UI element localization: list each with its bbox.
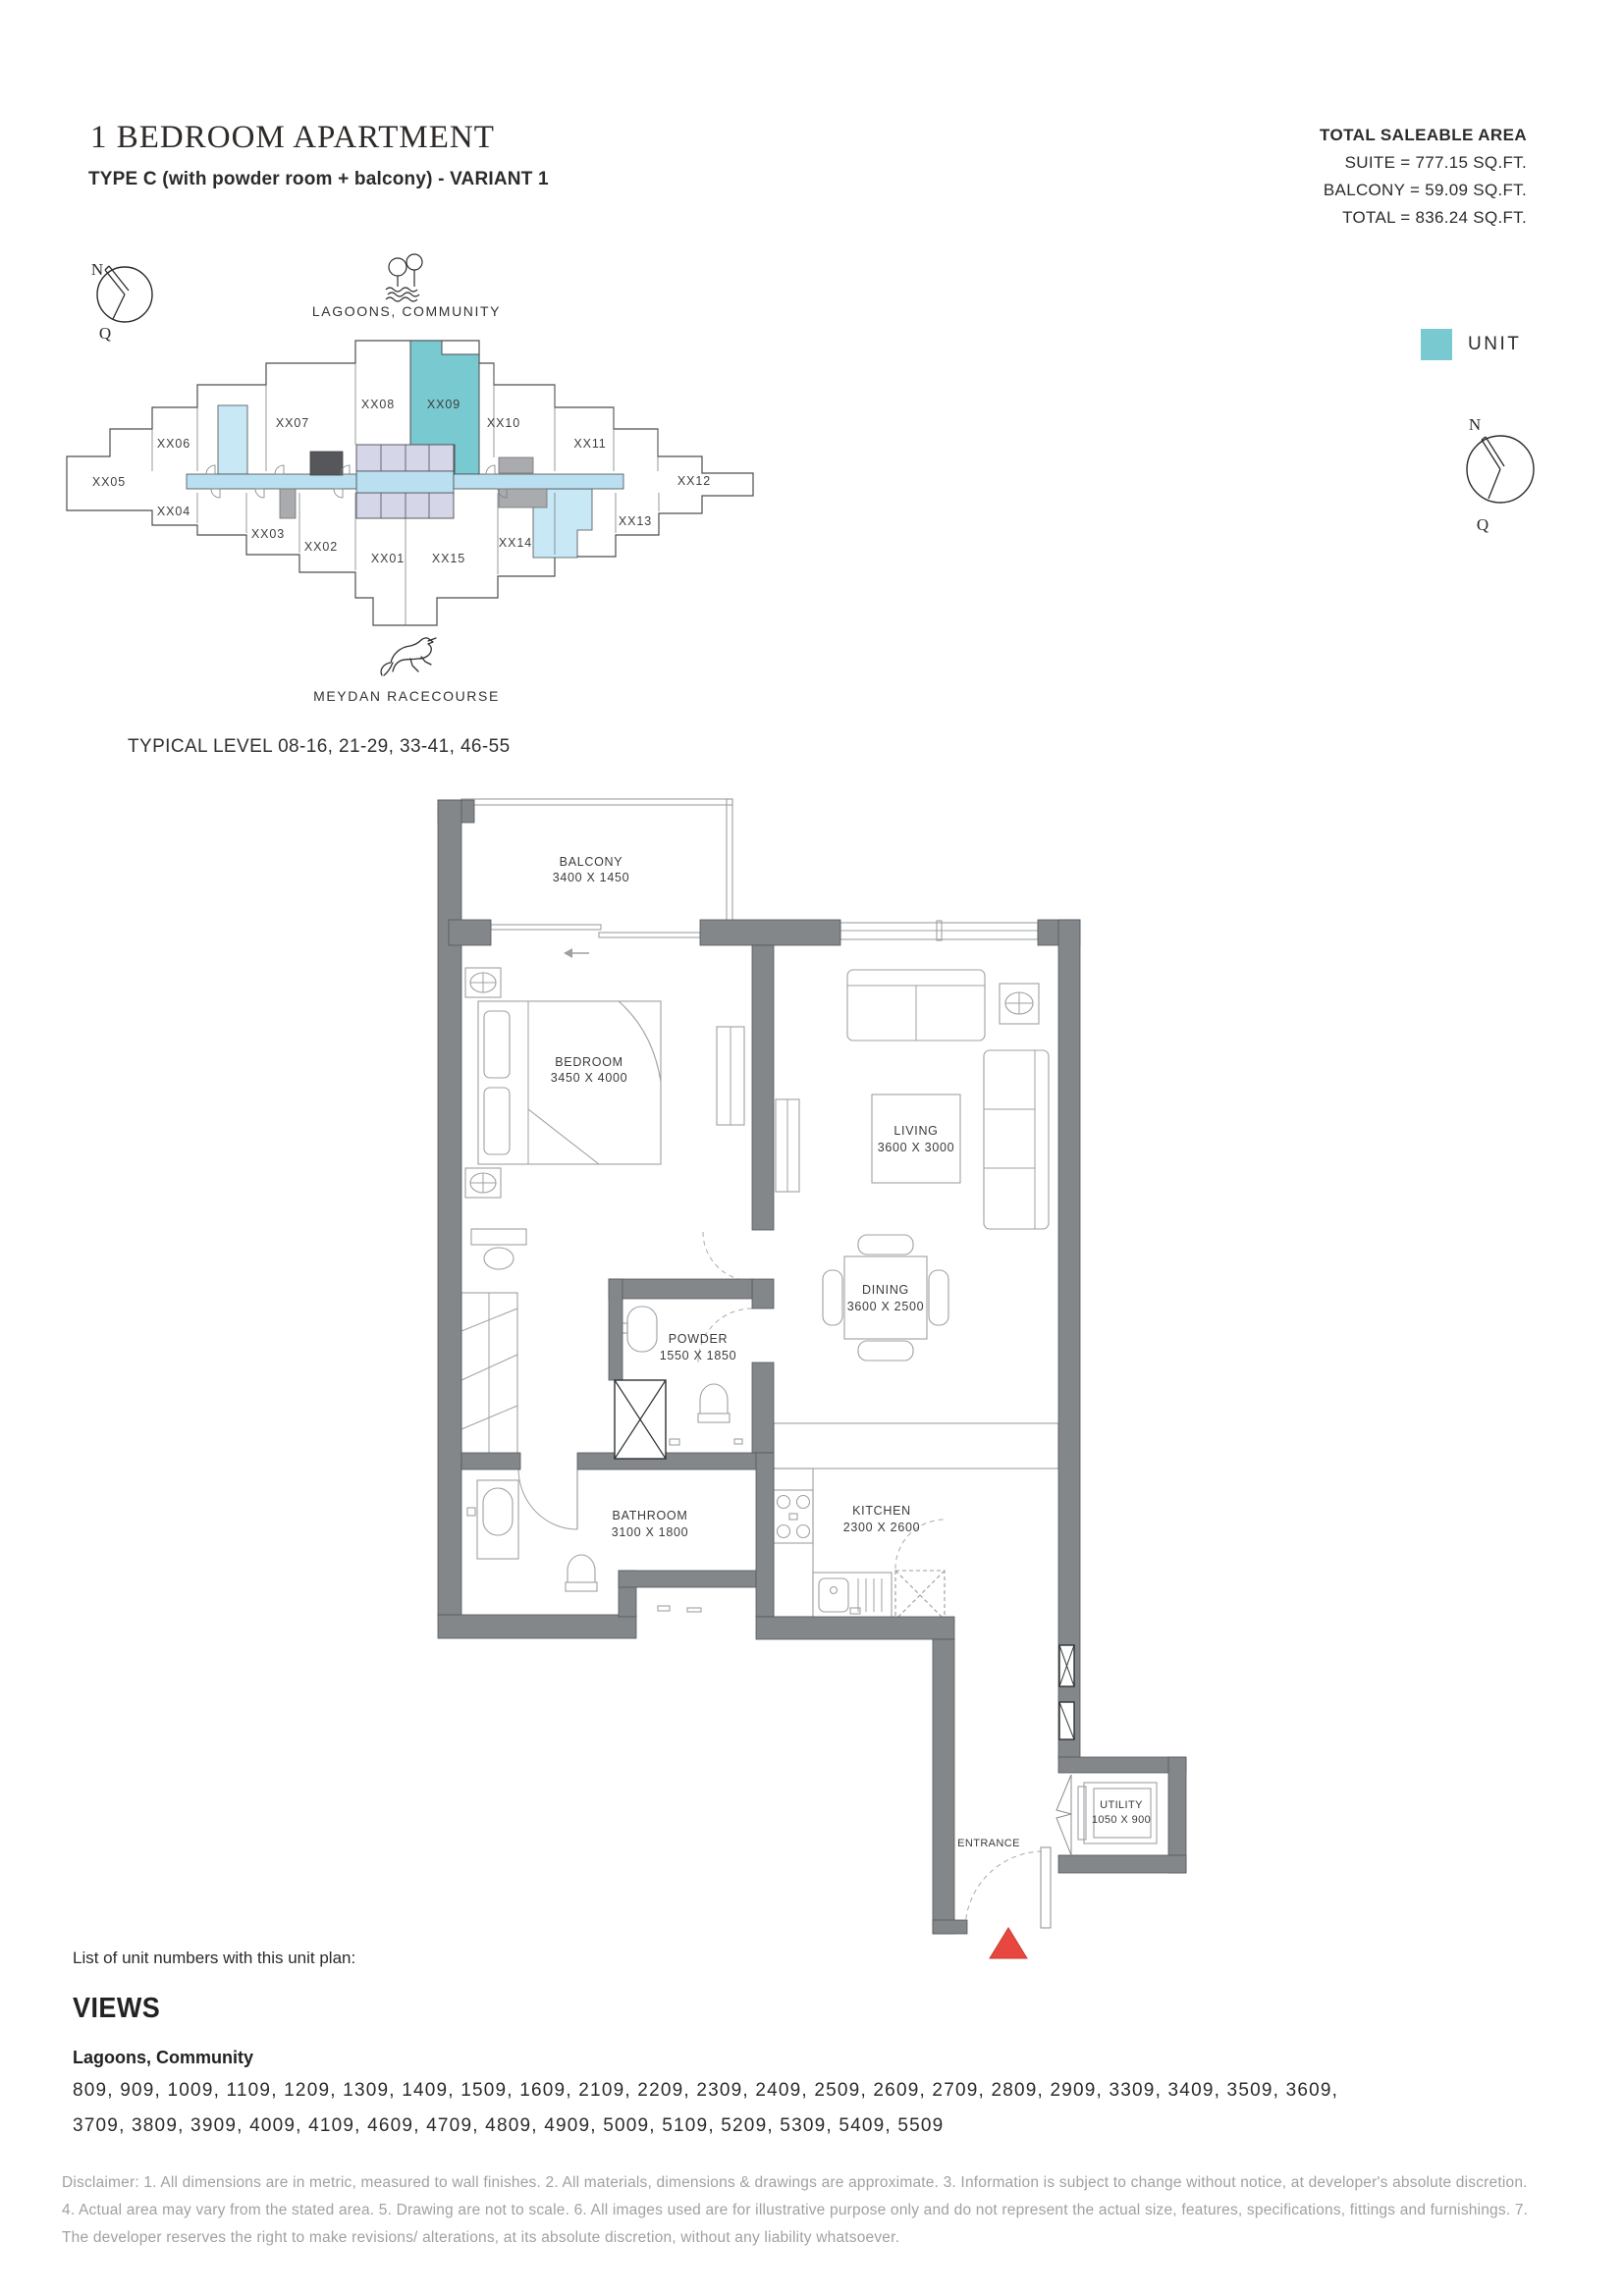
unit-legend-label: UNIT <box>1468 334 1521 355</box>
entrance-door-leaf <box>1041 1847 1051 1928</box>
bathroom-toilet <box>568 1555 595 1582</box>
floorplan-furniture <box>461 799 1157 1843</box>
kitchen-counter <box>774 1423 1058 1468</box>
dining-table <box>844 1256 927 1339</box>
keyplan-unit-xx15: XX15 <box>432 552 465 565</box>
page-subtitle: TYPE C (with powder room + balcony) - VA… <box>88 169 549 190</box>
keyplan-unit-xx10: XX10 <box>487 416 520 430</box>
floorplan-brochure-page: 1 BEDROOM APARTMENT TYPE C (with powder … <box>0 0 1624 2296</box>
landmark-bottom-label: MEYDAN RACECOURSE <box>313 688 500 704</box>
room-label-dining: DINING <box>862 1283 909 1297</box>
saleable-area-balcony: BALCONY = 59.09 SQ.FT. <box>1320 177 1527 204</box>
compass-n-label: N <box>91 260 103 279</box>
balcony-arrow-icon <box>564 948 572 958</box>
entrance-doors <box>1041 1775 1071 1928</box>
keyplan-unit-xx04: XX04 <box>157 505 190 518</box>
floorplan-walls <box>438 800 1186 1934</box>
typical-level-label: TYPICAL LEVEL 08-16, 21-29, 33-41, 46-55 <box>128 736 511 758</box>
washer <box>1084 1783 1157 1843</box>
saleable-area-suite: SUITE = 777.15 SQ.FT. <box>1320 149 1527 177</box>
page-title: 1 BEDROOM APARTMENT <box>90 120 495 156</box>
compass-icon: N Q <box>91 260 152 343</box>
room-label-balcony: BALCONY <box>560 855 623 869</box>
room-dims-powder: 1550 X 1850 <box>660 1349 737 1362</box>
lagoons-icon <box>386 254 422 301</box>
entrance-marker-icon <box>990 1928 1027 1958</box>
keyplan-unit-xx14: XX14 <box>499 536 532 550</box>
saleable-area-block: TOTAL SALEABLE AREA SUITE = 777.15 SQ.FT… <box>1320 122 1527 232</box>
keyplan-unit-xx02: XX02 <box>304 540 338 554</box>
saleable-area-total: TOTAL = 836.24 SQ.FT. <box>1320 204 1527 232</box>
keyplan-building: XX05 XX06 XX07 XX08 XX09 XX10 XX11 XX12 … <box>67 341 753 625</box>
keyplan-unit-xx03: XX03 <box>251 527 285 541</box>
room-dims-bedroom: 3450 X 4000 <box>551 1071 628 1085</box>
keyplan-unit-xx12: XX12 <box>677 474 711 488</box>
room-label-bathroom: BATHROOM <box>613 1509 688 1522</box>
landmark-top-label: LAGOONS, COMMUNITY <box>312 303 501 319</box>
compass-q-label: Q <box>99 324 111 343</box>
keyplan-unit-xx08: XX08 <box>361 398 395 411</box>
l-sofa <box>984 1050 1049 1229</box>
powder-sink <box>627 1307 657 1352</box>
room-label-utility: UTILITY <box>1100 1799 1143 1811</box>
unit-legend: UNIT <box>1421 329 1521 360</box>
room-dims-kitchen: 2300 X 2600 <box>843 1521 921 1534</box>
disclaimer-text: Disclaimer: 1. All dimensions are in met… <box>62 2169 1535 2252</box>
room-label-powder: POWDER <box>669 1332 728 1346</box>
keyplan-unit-xx06: XX06 <box>157 437 190 451</box>
unit-list-label: List of unit numbers with this unit plan… <box>73 1949 355 1968</box>
compass-icon-right: N Q <box>1445 404 1553 537</box>
entrance-label: ENTRANCE <box>957 1838 1020 1849</box>
living-rug <box>872 1095 960 1183</box>
keyplan-unit-xx13: XX13 <box>619 514 652 528</box>
powder-toilet <box>700 1384 728 1414</box>
keyplan-unit-xx07: XX07 <box>276 416 309 430</box>
racecourse-horse-icon <box>381 638 436 675</box>
keyplan-unit-xx05: XX05 <box>92 475 126 489</box>
room-label-bedroom: BEDROOM <box>555 1055 623 1069</box>
compass-right-q-label: Q <box>1477 515 1489 534</box>
floorplan-svg: BALCONY 3400 X 1450 BEDROOM 3450 X 4000 … <box>422 775 1198 1973</box>
unit-numbers-list: 809, 909, 1009, 1109, 1209, 1309, 1409, … <box>73 2073 1339 2144</box>
room-dims-dining: 3600 X 2500 <box>847 1300 925 1313</box>
keyplan-unit-xx09: XX09 <box>427 398 460 411</box>
kitchen-sink <box>813 1573 892 1618</box>
unit-legend-swatch <box>1421 329 1452 360</box>
keyplan-unit-xx11: XX11 <box>573 437 606 451</box>
views-title: VIEWS <box>73 1993 160 2025</box>
keyplan-svg: N Q LAGOONS, COMMUNITY <box>54 221 800 712</box>
room-dims-bathroom: 3100 X 1800 <box>612 1525 689 1539</box>
keyplan-unit-xx01: XX01 <box>371 552 405 565</box>
stove <box>774 1490 813 1543</box>
room-dims-utility: 1050 X 900 <box>1092 1814 1151 1826</box>
shafts <box>615 1380 1074 1739</box>
room-label-living: LIVING <box>893 1124 938 1138</box>
room-label-kitchen: KITCHEN <box>852 1504 911 1518</box>
views-subtitle: Lagoons, Community <box>73 2048 253 2068</box>
room-dims-living: 3600 X 3000 <box>878 1141 955 1154</box>
room-dims-balcony: 3400 X 1450 <box>553 871 630 884</box>
saleable-area-heading: TOTAL SALEABLE AREA <box>1320 122 1527 149</box>
compass-right-n-label: N <box>1469 415 1481 434</box>
